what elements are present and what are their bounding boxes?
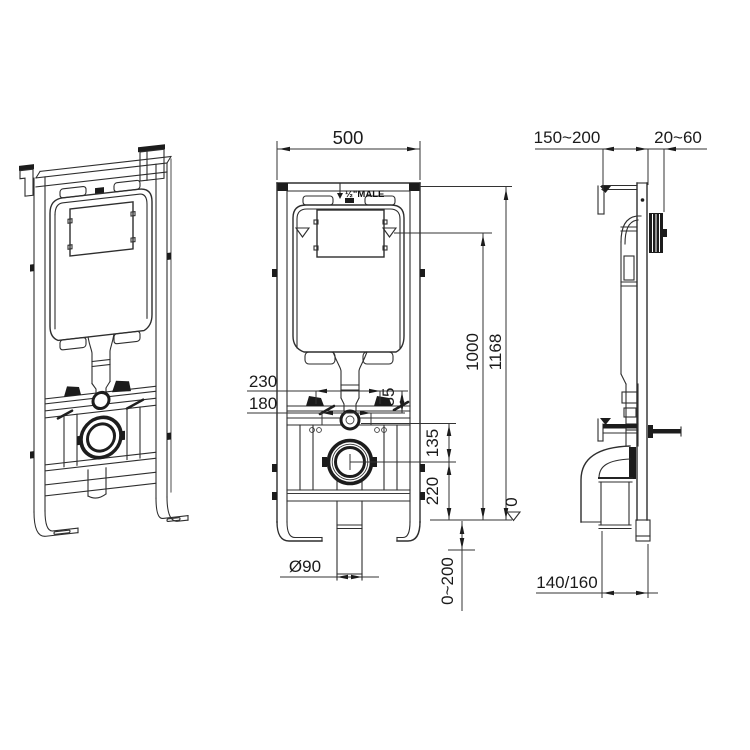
cistern-body bbox=[50, 179, 152, 352]
dim-220: 220 bbox=[423, 464, 451, 519]
dim-label-plate-depth: 20~60 bbox=[654, 128, 702, 147]
dim-20-60: 20~60 bbox=[654, 128, 702, 212]
side-view: 150~200 20~60 140/160 bbox=[534, 128, 707, 598]
front-flush-pipe bbox=[333, 352, 367, 411]
flush-elbow-port bbox=[93, 392, 109, 410]
dim-0-200: 0~200 bbox=[438, 521, 475, 611]
dim-label-floor-adjust: 0~200 bbox=[438, 557, 457, 605]
dim-label-width: 500 bbox=[333, 127, 364, 148]
wall-hook-right bbox=[138, 144, 165, 181]
front-access-panel bbox=[314, 210, 387, 257]
dim-label-datum: 0 bbox=[502, 497, 521, 506]
dim-label-outlet-depth: 140/160 bbox=[536, 573, 597, 592]
dim-label-water-height: 1000 bbox=[463, 333, 482, 371]
down-arrow-icon bbox=[337, 193, 343, 199]
dim-label-lower-holes: 180 bbox=[249, 394, 277, 413]
access-panel bbox=[68, 202, 135, 257]
support-feet bbox=[34, 495, 188, 538]
dim-label-rod-to-outlet: 135 bbox=[423, 429, 442, 457]
flush-plate bbox=[649, 213, 667, 253]
dim-label-total-height: 1168 bbox=[486, 334, 505, 371]
front-drain-pipe bbox=[337, 501, 362, 580]
drain-elbow bbox=[581, 446, 636, 529]
wall-bracket-top bbox=[598, 186, 637, 215]
dim-label-outlet-height: 220 bbox=[423, 477, 442, 505]
dim-drain-diameter: Ø90 bbox=[280, 557, 379, 579]
side-plate bbox=[636, 183, 650, 541]
inlet-thread-text: ½"MALE bbox=[345, 189, 384, 200]
inlet-label: ½"MALE bbox=[337, 184, 384, 200]
dim-label-frame-depth: 150~200 bbox=[534, 128, 601, 147]
fixing-rod bbox=[648, 425, 681, 438]
drain-pipe bbox=[88, 468, 106, 499]
dim-label-offset: 35 bbox=[379, 388, 398, 407]
front-flush-elbow-port bbox=[341, 411, 359, 429]
dim-label-drain-diameter: Ø90 bbox=[289, 557, 321, 576]
side-cistern-profile bbox=[621, 216, 641, 446]
dim-500: 500 bbox=[277, 127, 420, 180]
cistern-frame-technical-drawing: ½"MALE 500 1168 1000 bbox=[0, 0, 750, 750]
water-level-mark-left bbox=[296, 228, 309, 237]
front-view: ½"MALE 500 1168 1000 bbox=[247, 127, 521, 611]
dim-1000: 1000 bbox=[394, 233, 492, 520]
isometric-view bbox=[19, 142, 188, 540]
datum-triangle-icon bbox=[507, 512, 520, 521]
dim-label-upper-holes: 230 bbox=[249, 372, 277, 391]
outlet-flange bbox=[77, 415, 125, 460]
wall-hook-left bbox=[19, 164, 34, 197]
flush-pipe bbox=[88, 334, 114, 394]
